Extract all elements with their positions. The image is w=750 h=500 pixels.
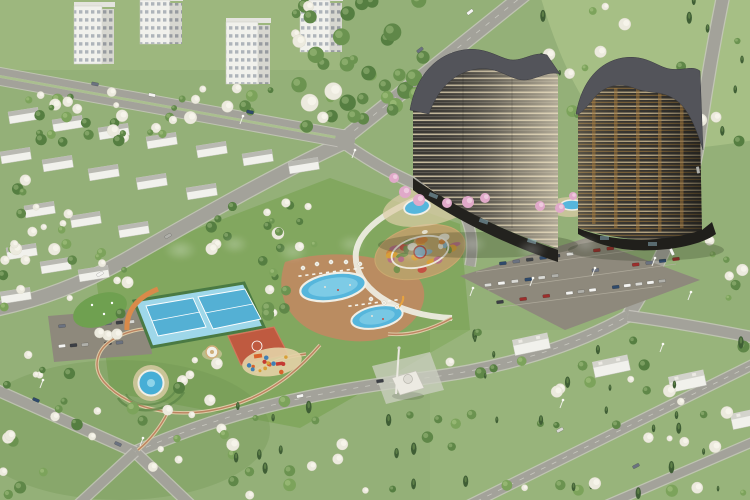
car — [577, 290, 584, 294]
blossom-highlight — [269, 286, 274, 291]
tree-highlight — [139, 417, 144, 422]
blossom-highlight — [98, 329, 103, 334]
blossom-highlight — [208, 396, 214, 402]
tree-highlight — [285, 480, 291, 486]
conifer-tip — [493, 352, 494, 355]
tree-highlight — [207, 223, 212, 228]
blossom-highlight — [40, 93, 44, 97]
tree-highlight — [302, 122, 308, 128]
blossom-highlight — [321, 113, 327, 119]
play-equipment — [262, 360, 266, 364]
tree-highlight — [732, 281, 737, 286]
tree-highlight — [399, 84, 407, 92]
tree-highlight — [264, 223, 268, 227]
car — [538, 276, 545, 280]
umbrella-pole — [330, 261, 331, 262]
tree-highlight — [380, 81, 385, 86]
blossom-highlight — [331, 85, 340, 94]
tree-highlight — [59, 138, 63, 142]
conifer-tip — [688, 13, 690, 19]
tree-highlight — [735, 39, 738, 42]
swimmer — [382, 318, 384, 320]
tree-highlight — [4, 382, 8, 386]
conifer-tip — [637, 488, 639, 494]
blossom-highlight — [110, 89, 115, 94]
street-light-lamp — [354, 149, 357, 152]
blossom-highlight — [294, 31, 298, 35]
tree-highlight — [297, 219, 300, 222]
blossom-highlight — [683, 438, 688, 443]
tree-highlight — [518, 357, 522, 361]
tree-highlight — [579, 362, 583, 366]
blossom-highlight — [337, 455, 342, 460]
tree-highlight — [423, 433, 428, 438]
swimmer — [337, 289, 339, 291]
street-light-lamp — [242, 115, 245, 118]
right-tower — [576, 57, 716, 250]
blossom-highlight — [191, 412, 194, 415]
amber-strip — [658, 90, 662, 232]
tree-highlight — [120, 131, 123, 134]
blossom-highlight — [341, 440, 347, 446]
tree-highlight — [72, 420, 76, 424]
conifer-tip — [387, 415, 389, 421]
street-light-lamp — [42, 379, 45, 382]
tree-highlight — [180, 96, 183, 99]
blossom-highlight — [106, 332, 111, 337]
tree-highlight — [349, 111, 355, 117]
mosque-dome — [404, 375, 413, 384]
tree-highlight — [491, 365, 495, 369]
pink-blossom-highlight — [393, 175, 398, 180]
blossom-highlight — [35, 372, 38, 375]
blossom-highlight — [630, 377, 633, 380]
blossom-highlight — [101, 260, 105, 264]
conifer-tip — [741, 56, 743, 60]
play-equipment — [247, 363, 251, 367]
tree-highlight — [17, 210, 21, 214]
conifer-tip — [670, 462, 672, 468]
tree-highlight — [65, 369, 70, 374]
tower-side — [258, 25, 270, 84]
blossom-highlight — [160, 447, 163, 450]
tree-highlight — [310, 49, 317, 56]
car — [612, 285, 619, 289]
blossom-highlight — [449, 359, 453, 363]
car — [519, 297, 526, 301]
blossom-highlight — [623, 20, 629, 26]
blossom-highlight — [696, 484, 702, 490]
tree-highlight — [583, 65, 586, 68]
tree-highlight — [305, 12, 311, 18]
tree-highlight — [342, 59, 349, 66]
blossom-highlight — [715, 113, 720, 118]
car — [624, 284, 631, 288]
blossom-highlight — [593, 479, 599, 485]
apartment-tower — [140, 0, 183, 44]
blossom-highlight — [669, 436, 672, 439]
car — [551, 274, 558, 278]
tree-highlight — [282, 287, 286, 291]
tree-highlight — [159, 131, 163, 135]
tree-highlight — [407, 412, 410, 415]
tree-highlight — [390, 486, 393, 489]
umbrella-pole — [359, 263, 360, 264]
tree-highlight — [221, 431, 225, 435]
tower-side — [102, 9, 114, 64]
tree-highlight — [20, 189, 23, 192]
blossom-highlight — [365, 488, 368, 491]
tree-highlight — [175, 383, 180, 388]
blossom-highlight — [548, 50, 554, 56]
blossom-highlight — [67, 211, 72, 216]
conifer-tip — [703, 449, 704, 452]
tree-highlight — [111, 119, 115, 123]
street-light-lamp — [690, 291, 693, 294]
tree-highlight — [644, 387, 648, 391]
golf-dot — [103, 313, 105, 315]
blossom-highlight — [152, 464, 157, 469]
tree-highlight — [586, 378, 591, 383]
play-equipment — [264, 355, 269, 360]
conifer-tip — [676, 412, 678, 416]
pink-blossom-highlight — [418, 196, 423, 201]
umbrella-pole — [383, 302, 384, 303]
play-equipment — [284, 355, 287, 358]
blossom-highlight — [202, 87, 205, 90]
conifer-tip — [707, 25, 709, 29]
blossom-highlight — [126, 278, 132, 284]
tree-highlight — [40, 469, 44, 473]
tree-highlight — [382, 93, 388, 99]
blossom-highlight — [116, 103, 119, 106]
tree-highlight — [166, 114, 170, 118]
blossom-highlight — [604, 4, 608, 8]
tree-highlight — [280, 304, 285, 309]
blossom-highlight — [714, 442, 720, 448]
minaret-cap — [397, 346, 400, 349]
blossom-highlight — [226, 102, 232, 108]
tree-highlight — [48, 131, 52, 135]
blossom-highlight — [166, 406, 171, 411]
blossom-highlight — [524, 485, 527, 488]
blossom-highlight — [231, 440, 237, 446]
conifer-tip — [485, 374, 486, 377]
tree-highlight — [724, 257, 727, 260]
tree-highlight — [468, 411, 472, 415]
tree-highlight — [277, 245, 281, 249]
conifer-tip — [653, 425, 655, 429]
conifer-tip — [464, 477, 466, 483]
amber-strip — [614, 88, 618, 228]
blossom-highlight — [680, 399, 684, 403]
golf-dot — [91, 304, 93, 306]
car — [70, 343, 77, 347]
play-equipment — [281, 362, 285, 366]
umbrella-pole — [302, 267, 303, 268]
blossom-highlight — [66, 98, 71, 103]
conifer-tip — [396, 449, 398, 454]
tree-highlight — [263, 310, 269, 316]
conifer-tip — [258, 450, 260, 455]
tree-highlight — [241, 102, 246, 107]
conifer-tip — [609, 385, 610, 388]
tree-highlight — [247, 91, 252, 96]
tree-highlight — [268, 88, 271, 91]
conifer-tip — [496, 417, 497, 420]
street-light-lamp — [594, 267, 597, 270]
blossom-highlight — [121, 112, 127, 118]
car — [116, 321, 123, 325]
tree-highlight — [741, 490, 744, 493]
tree-highlight — [148, 130, 151, 133]
blossom-highlight — [189, 372, 193, 376]
conifer-tip — [573, 483, 575, 487]
blossom-highlight — [172, 117, 176, 121]
amber-strip — [680, 96, 684, 228]
tree-highlight — [229, 203, 233, 207]
blossom-highlight — [249, 492, 253, 496]
conifer-tip — [272, 415, 274, 419]
blossom-highlight — [96, 408, 100, 412]
car — [511, 279, 518, 283]
blossom-highlight — [54, 100, 60, 106]
conifer-tip — [235, 453, 237, 458]
tower-side — [170, 3, 182, 44]
blossom-highlight — [236, 85, 241, 90]
blossom-highlight — [35, 205, 38, 208]
tree-highlight — [476, 369, 481, 374]
blossom-highlight — [266, 210, 270, 214]
blossom-highlight — [725, 408, 731, 414]
tree-highlight — [358, 94, 363, 99]
amber-strip — [636, 86, 640, 232]
blossom-highlight — [307, 3, 312, 8]
car — [658, 279, 665, 283]
blossom-highlight — [297, 37, 304, 44]
car — [525, 277, 532, 281]
conifer-tip — [674, 381, 676, 385]
tree-highlight — [16, 483, 21, 488]
apartment-tower — [74, 2, 115, 64]
blossom-highlight — [155, 125, 160, 130]
umbrella-pole — [396, 306, 397, 307]
tree-highlight — [475, 330, 478, 333]
tree-highlight — [246, 468, 250, 472]
tree-highlight — [13, 185, 18, 190]
conifer-tip — [412, 480, 414, 485]
tree-highlight — [174, 436, 177, 439]
conifer-tip — [542, 11, 544, 17]
tree-highlight — [556, 481, 561, 486]
tree-highlight — [630, 338, 634, 342]
blossom-highlight — [307, 204, 310, 207]
car — [58, 344, 65, 348]
conifer-tip — [717, 486, 718, 489]
tree-highlight — [270, 219, 273, 222]
blossom-highlight — [189, 113, 195, 119]
blossom-highlight — [24, 176, 29, 181]
blossom-highlight — [647, 434, 652, 439]
apartment-tower — [226, 18, 271, 84]
tree-highlight — [335, 30, 343, 38]
play-equipment — [266, 361, 270, 365]
tree-highlight — [667, 486, 673, 492]
conifer-tip — [307, 402, 310, 408]
car — [496, 300, 503, 304]
car — [589, 288, 596, 292]
play-equipment — [279, 370, 284, 375]
street-light-lamp — [142, 437, 145, 440]
car — [499, 261, 506, 265]
car — [543, 294, 550, 298]
blossom-highlight — [194, 96, 198, 100]
conifer-tip — [237, 403, 239, 407]
tree-highlight — [98, 249, 102, 253]
blossom-highlight — [298, 243, 303, 248]
blossom-highlight — [91, 434, 95, 438]
blossom-highlight — [69, 296, 72, 299]
blossom-highlight — [13, 241, 17, 245]
blossom-highlight — [311, 463, 316, 468]
conifer-tip — [540, 416, 542, 421]
car — [81, 343, 88, 347]
blossom-highlight — [181, 377, 186, 382]
tree-highlight — [59, 227, 62, 230]
umbrella-pole — [370, 298, 371, 299]
blossom-highlight — [76, 105, 81, 110]
gazebo-top — [210, 350, 214, 354]
tree-highlight — [230, 477, 235, 482]
tree-highlight — [395, 70, 401, 76]
golf-dot — [111, 302, 113, 304]
car — [376, 379, 383, 383]
blossom-highlight — [568, 70, 573, 75]
car — [635, 282, 642, 286]
tree-highlight — [37, 135, 42, 140]
conifer-tip — [264, 464, 266, 470]
car — [647, 281, 654, 285]
umbrella-pole — [345, 261, 346, 262]
blossom-highlight — [178, 457, 182, 461]
blossom-highlight — [27, 352, 31, 356]
pink-blossom-highlight — [467, 198, 472, 203]
tree-highlight — [590, 8, 594, 12]
blossom-highlight — [741, 266, 747, 272]
play-equipment — [251, 367, 255, 371]
blossom-highlight — [112, 126, 118, 132]
blossom-highlight — [599, 48, 605, 54]
blossom-highlight — [285, 200, 289, 204]
blossom-highlight — [54, 413, 59, 418]
tree-highlight — [640, 361, 645, 366]
tree-highlight — [1, 304, 5, 308]
tree-highlight — [363, 68, 370, 75]
tree-highlight — [568, 107, 573, 112]
blossom-highlight — [43, 225, 46, 228]
tree-highlight — [435, 416, 439, 420]
tree-highlight — [386, 26, 394, 34]
tree-highlight — [726, 296, 729, 299]
car — [566, 291, 573, 295]
tree-highlight — [5, 491, 9, 495]
umbrella-pole — [316, 263, 317, 264]
swimmer — [324, 286, 326, 288]
tree-highlight — [418, 52, 424, 58]
tree-highlight — [270, 269, 274, 273]
car — [484, 283, 491, 287]
play-equipment — [258, 369, 261, 372]
street-light-lamp — [654, 257, 657, 260]
tree-highlight — [452, 420, 457, 425]
street-light-lamp — [472, 287, 475, 290]
conifer-tip — [606, 407, 608, 411]
tree-highlight — [613, 421, 617, 425]
tree-highlight — [701, 412, 704, 415]
tree-highlight — [280, 397, 285, 402]
amber-strip — [592, 96, 596, 224]
swimmer — [349, 284, 351, 286]
tree-highlight — [554, 423, 557, 426]
conifer-tip — [678, 424, 680, 430]
conifer-tip — [597, 346, 599, 351]
blossom-highlight — [116, 330, 121, 335]
tree-highlight — [293, 79, 300, 86]
pink-blossom-highlight — [404, 188, 409, 193]
tree-highlight — [85, 131, 90, 136]
tree-highlight — [122, 268, 125, 271]
tower-front — [74, 6, 102, 64]
conifer-tip — [413, 444, 415, 450]
car — [526, 258, 533, 262]
blossom-highlight — [9, 432, 14, 437]
tree-highlight — [312, 418, 316, 422]
blossom-highlight — [31, 228, 36, 233]
swimmer — [371, 315, 373, 317]
tree-highlight — [276, 229, 280, 233]
blossom-highlight — [555, 387, 561, 393]
play-equipment — [263, 367, 267, 371]
tree-highlight — [229, 451, 233, 455]
blossom-highlight — [728, 273, 733, 278]
blossom-highlight — [24, 257, 29, 262]
blossom-highlight — [4, 257, 9, 262]
blossom-highlight — [20, 286, 24, 290]
street-light-lamp — [562, 399, 565, 402]
tree-highlight — [128, 404, 134, 410]
tree-highlight — [56, 406, 60, 410]
tree-highlight — [449, 443, 453, 447]
blossom-highlight — [194, 358, 197, 361]
tree-highlight — [26, 97, 29, 100]
blossom-highlight — [62, 221, 65, 224]
tree-highlight — [40, 368, 43, 371]
car — [498, 281, 505, 285]
car — [513, 259, 520, 263]
blossom-highlight — [215, 359, 221, 365]
pink-blossom-highlight — [539, 203, 544, 208]
conifer-tip — [566, 378, 568, 384]
tower-front — [140, 0, 170, 44]
car — [632, 263, 639, 267]
tree-highlight — [96, 254, 99, 257]
conifer-tip — [721, 127, 723, 132]
play-equipment — [271, 361, 276, 366]
tree-highlight — [63, 113, 68, 118]
pink-blossom-highlight — [572, 193, 576, 197]
tree-highlight — [503, 481, 508, 486]
tree-highlight — [253, 416, 256, 419]
